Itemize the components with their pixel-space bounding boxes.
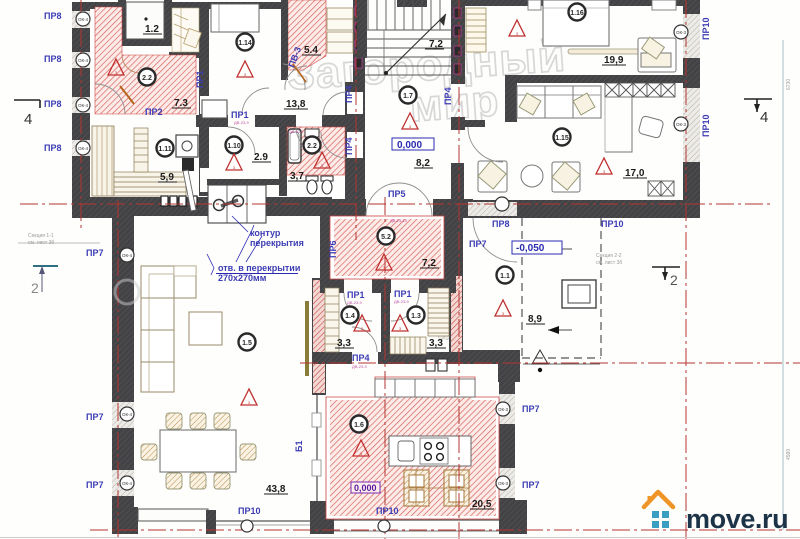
svg-text:ПР10: ПР10 — [601, 219, 623, 229]
svg-text:2.9: 2.9 — [254, 152, 268, 163]
svg-text:1.16: 1.16 — [570, 10, 584, 17]
svg-text:ОК-4: ОК-4 — [78, 146, 89, 151]
svg-text:ПР8: ПР8 — [492, 219, 509, 229]
svg-text:ОК-4: ОК-4 — [122, 412, 133, 417]
svg-text:20,5: 20,5 — [472, 499, 492, 510]
svg-text:Секция 1-1: Секция 1-1 — [28, 233, 54, 239]
svg-text:1.2: 1.2 — [145, 24, 159, 35]
svg-text:см. лист 3б: см. лист 3б — [596, 260, 622, 266]
svg-text:ПР4: ПР4 — [352, 353, 369, 363]
svg-text:6730: 6730 — [786, 79, 792, 90]
svg-text:ПР7: ПР7 — [469, 239, 486, 249]
svg-text:1.4: 1.4 — [345, 313, 355, 320]
svg-text:ПР8: ПР8 — [44, 54, 61, 64]
svg-text:1.10: 1.10 — [227, 143, 241, 150]
svg-text:1.7: 1.7 — [403, 93, 413, 100]
svg-text:ОК-4: ОК-4 — [78, 103, 89, 108]
svg-text:2.2: 2.2 — [142, 75, 152, 82]
svg-text:ПР5: ПР5 — [388, 189, 405, 199]
svg-text:1.5: 1.5 — [242, 340, 252, 347]
svg-text:ДВ-23-9: ДВ-23-9 — [394, 299, 409, 304]
svg-text:ПР1: ПР1 — [394, 289, 411, 299]
svg-text:19,9: 19,9 — [604, 55, 624, 66]
svg-text:ПР7: ПР7 — [522, 480, 539, 490]
svg-text:0,000: 0,000 — [397, 140, 422, 151]
svg-text:ПР4: ПР4 — [344, 138, 354, 155]
svg-text:5.2: 5.2 — [381, 234, 391, 241]
svg-text:1.6: 1.6 — [354, 422, 364, 429]
svg-text:8,9: 8,9 — [528, 314, 542, 325]
svg-text:1.15: 1.15 — [555, 135, 569, 142]
svg-text:ПР8: ПР8 — [44, 11, 61, 21]
svg-text:ДВ-23-10: ДВ-23-10 — [390, 218, 408, 223]
svg-text:ПР7: ПР7 — [86, 248, 103, 258]
svg-text:3,7: 3,7 — [290, 171, 304, 182]
svg-text:ПР8: ПР8 — [44, 143, 61, 153]
svg-text:3,3: 3,3 — [429, 338, 443, 349]
svg-text:ПР10: ПР10 — [701, 115, 711, 137]
svg-text:ПР10: ПР10 — [238, 506, 260, 516]
svg-text:17,0: 17,0 — [625, 168, 645, 179]
svg-text:Секция 2-2: Секция 2-2 — [596, 253, 622, 259]
svg-text:ОК-3: ОК-3 — [498, 407, 509, 412]
svg-text:7,2: 7,2 — [429, 39, 443, 50]
svg-text:ДВ-23-9: ДВ-23-9 — [234, 120, 249, 125]
svg-text:43,8: 43,8 — [266, 484, 286, 495]
svg-text:Б1: Б1 — [294, 441, 304, 452]
svg-text:ОК-4: ОК-4 — [78, 58, 89, 63]
svg-text:ПР6: ПР6 — [328, 241, 338, 258]
svg-text:ПР1: ПР1 — [195, 71, 205, 88]
svg-text:ОК-4: ОК-4 — [78, 17, 89, 22]
svg-text:4: 4 — [24, 111, 32, 128]
svg-text:7.3: 7.3 — [174, 98, 188, 109]
svg-text:4: 4 — [760, 109, 768, 126]
svg-text:270х270мм: 270х270мм — [218, 273, 267, 283]
svg-text:ПР7: ПР7 — [86, 480, 103, 490]
svg-text:ПР10: ПР10 — [701, 18, 711, 40]
svg-text:2.2: 2.2 — [307, 143, 317, 150]
svg-text:13,8: 13,8 — [286, 99, 306, 110]
svg-text:2: 2 — [31, 280, 39, 296]
svg-text:ОК-3: ОК-3 — [498, 481, 509, 486]
svg-text:ПР7: ПР7 — [522, 404, 539, 414]
svg-text:ПР4: ПР4 — [443, 88, 453, 105]
svg-text:5,9: 5,9 — [160, 172, 174, 183]
svg-text:4580: 4580 — [786, 449, 792, 460]
svg-text:ПР1: ПР1 — [347, 290, 364, 300]
svg-text:1.14: 1.14 — [238, 40, 252, 47]
svg-text:ОК-4: ОК-4 — [122, 253, 133, 258]
svg-text:ОК-3: ОК-3 — [676, 30, 687, 35]
svg-text:5.4: 5.4 — [304, 45, 318, 56]
svg-text:ДВ-23-9: ДВ-23-9 — [347, 300, 362, 305]
svg-text:1.3: 1.3 — [411, 313, 421, 320]
svg-text:move.ru: move.ru — [686, 504, 788, 534]
svg-text:0,000: 0,000 — [354, 483, 377, 493]
svg-text:ПР1: ПР1 — [231, 110, 248, 120]
svg-text:8,2: 8,2 — [416, 158, 430, 169]
svg-text:ПР2: ПР2 — [145, 107, 162, 117]
svg-text:1.1: 1.1 — [500, 273, 510, 280]
svg-text:контур: контур — [250, 228, 281, 238]
svg-text:ПР4: ПР4 — [344, 86, 354, 103]
svg-text:ОК-4: ОК-4 — [122, 481, 133, 486]
svg-text:3,3: 3,3 — [337, 338, 351, 349]
svg-text:см. лист 3б: см. лист 3б — [28, 240, 54, 246]
svg-text:ДВ-23-7: ДВ-23-7 — [289, 129, 304, 134]
svg-text:ПР10: ПР10 — [376, 506, 398, 516]
svg-text:1.11: 1.11 — [158, 146, 171, 153]
svg-text:7,2: 7,2 — [422, 258, 436, 269]
svg-text:2: 2 — [670, 272, 678, 288]
svg-text:ДВ-23-9: ДВ-23-9 — [352, 364, 367, 369]
svg-text:отв. в перекрытии: отв. в перекрытии — [218, 263, 300, 273]
svg-text:ОК-3: ОК-3 — [676, 122, 687, 127]
svg-text:ПР7: ПР7 — [86, 412, 103, 422]
svg-text:ПР8: ПР8 — [44, 99, 61, 109]
svg-text:-0,050: -0,050 — [516, 243, 545, 254]
